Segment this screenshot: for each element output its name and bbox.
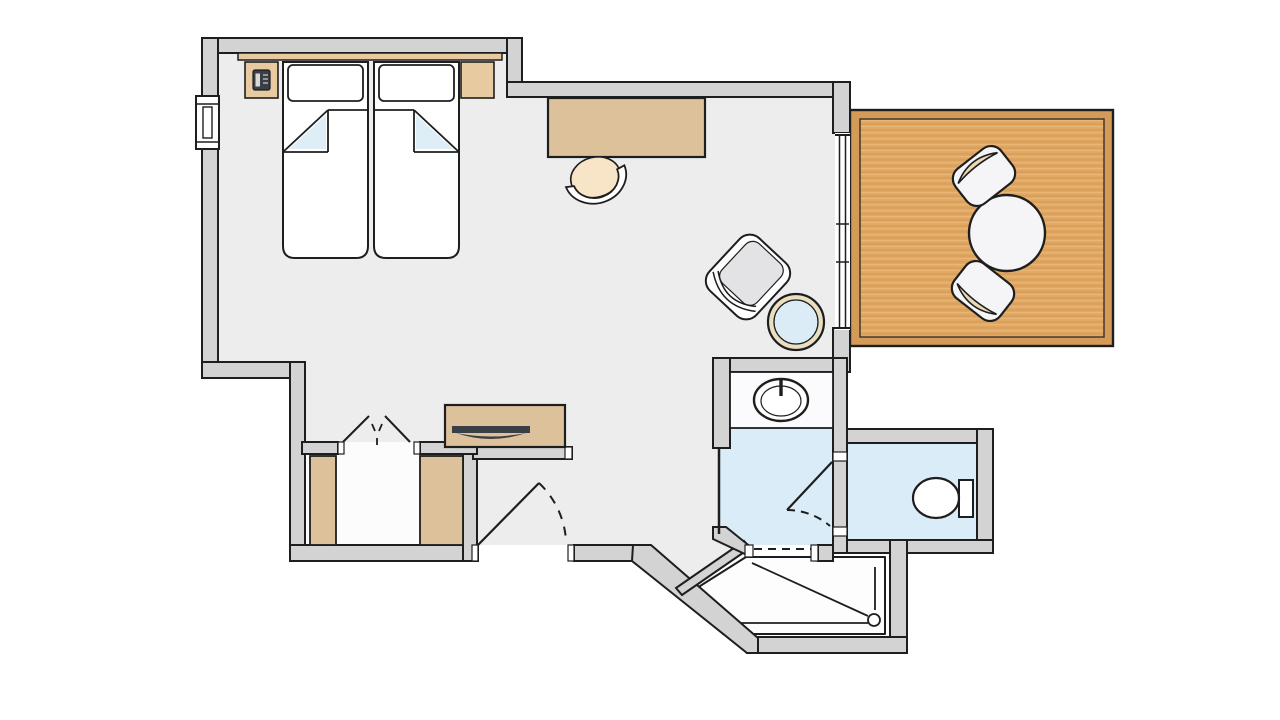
wall-under-sideboard	[473, 447, 572, 459]
balcony-sliding-door	[835, 133, 850, 330]
balcony	[850, 110, 1113, 346]
bathroom-floor	[719, 428, 833, 545]
wardrobe-left	[310, 456, 336, 545]
wall-bottom-left	[290, 545, 478, 561]
tv	[452, 426, 530, 433]
wall-closet-top-left	[302, 442, 338, 454]
floor-plan-drawing	[0, 0, 1280, 720]
closet-jamb-right	[414, 442, 420, 454]
side-table	[768, 294, 824, 350]
tv-sideboard	[445, 405, 565, 447]
toilet	[913, 478, 973, 518]
shower-drain	[868, 614, 880, 626]
entry-door-jamb-right	[568, 545, 574, 561]
closet-jamb-left	[338, 442, 344, 454]
wall-top	[202, 38, 522, 53]
wc-door-jamb-top	[833, 452, 847, 461]
wall-right-upper	[833, 82, 850, 133]
washbasin-counter	[730, 372, 833, 428]
sideboard-wall-end-jamb	[565, 447, 572, 459]
wall-top-right	[507, 82, 850, 97]
shower-entry-jamb-left	[745, 545, 753, 557]
shower-entry-jamb-right	[811, 545, 818, 561]
wall-left	[202, 38, 218, 378]
wall-wc-top	[847, 429, 993, 443]
floor-plan-page	[0, 0, 1280, 720]
wall-bath-bottom-right	[818, 545, 833, 561]
desk	[548, 98, 705, 157]
twin-bed-left	[283, 62, 368, 258]
window	[196, 96, 219, 149]
wall-entry-right	[574, 545, 640, 561]
entry-door-jamb-left	[472, 545, 478, 561]
wall-shower-bottom	[747, 637, 907, 653]
headboard	[238, 53, 502, 60]
wall-bath-left	[713, 358, 730, 448]
telephone	[253, 70, 270, 90]
wc-door-jamb-bottom	[833, 527, 847, 536]
twin-bed-right	[374, 62, 459, 258]
wardrobe-right	[420, 456, 463, 545]
nightstand-right	[461, 62, 494, 98]
wall-wc-right	[977, 429, 993, 553]
pillow-left	[288, 65, 363, 101]
wall-closet-left	[290, 362, 305, 561]
pillow-right	[379, 65, 454, 101]
wall-bath-top	[713, 358, 847, 372]
wall-wc-bottom	[847, 540, 993, 553]
